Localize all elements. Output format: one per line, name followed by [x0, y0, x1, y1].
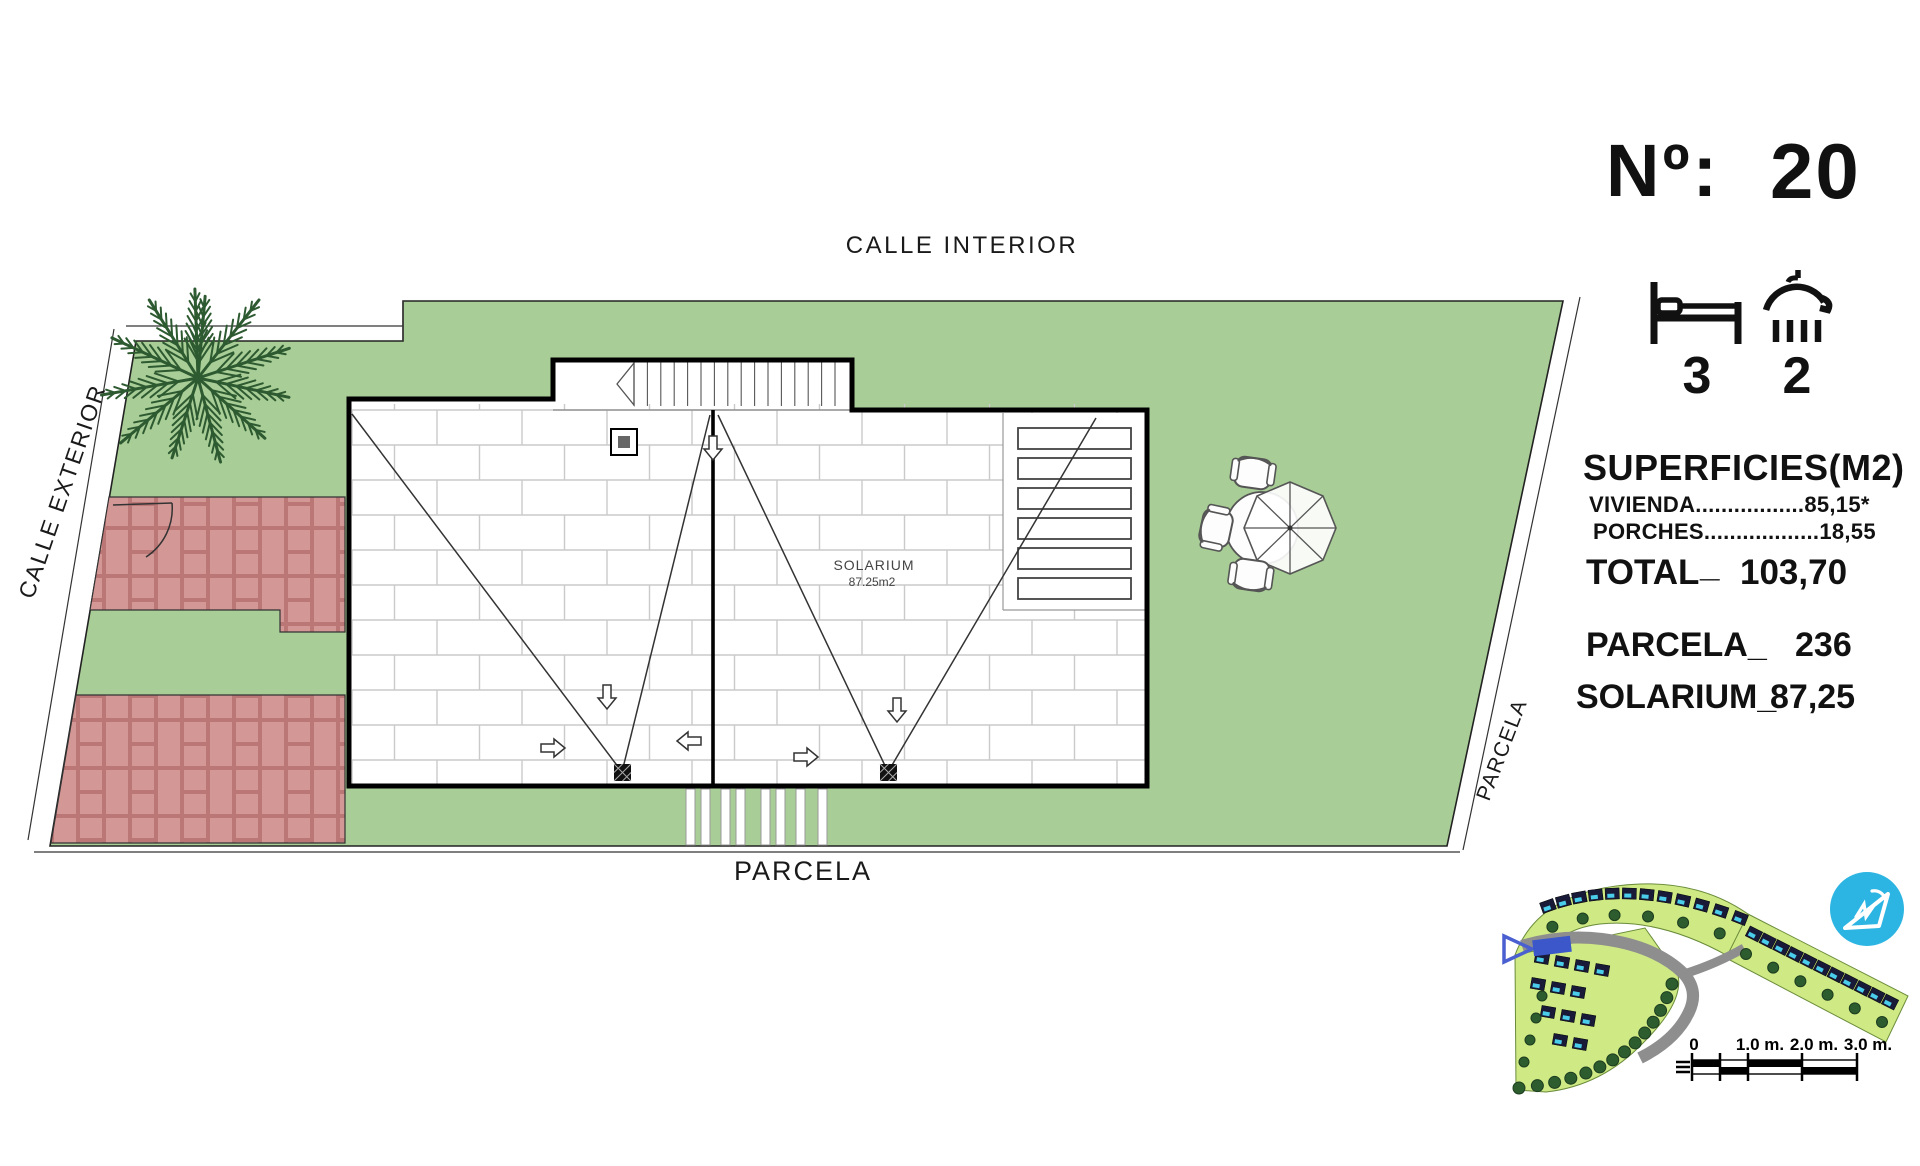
stepping-pad — [701, 789, 710, 845]
surfaces-title: SUPERFICIES(M2) — [1583, 447, 1905, 489]
bathrooms-count: 2 — [1752, 346, 1842, 406]
scale-tick-3: 3.0 m. — [1844, 1035, 1892, 1054]
minimap-house — [1580, 1013, 1596, 1026]
minimap-tree — [1714, 928, 1725, 939]
minimap-house — [1605, 888, 1619, 900]
stepping-pad — [818, 789, 827, 845]
minimap-house — [1540, 1005, 1556, 1018]
skylight — [611, 429, 637, 455]
minimap-tree — [1549, 1076, 1561, 1088]
solarium-room-label: SOLARIUM — [833, 557, 914, 573]
minimap-house — [1560, 1009, 1576, 1022]
brick-driveway-lower — [51, 695, 345, 843]
minimap-house — [1588, 889, 1603, 902]
minimap-tree — [1639, 1027, 1651, 1039]
minimap-house — [1572, 1037, 1588, 1050]
minimap-tree — [1519, 1057, 1529, 1067]
minimap-tree — [1547, 921, 1558, 932]
minimap-tree — [1525, 1035, 1535, 1045]
solarium-area-label: SOLARIUM_ — [1576, 678, 1776, 717]
minimap-tree — [1629, 1037, 1641, 1049]
total-area-value: 103,70 — [1740, 553, 1847, 593]
minimap-house — [1657, 890, 1673, 903]
minimap-tree — [1666, 978, 1678, 990]
street-label-calle-interior: CALLE INTERIOR — [846, 232, 1078, 259]
parcela-label-bottom: PARCELA — [734, 856, 872, 886]
porches-area-line: PORCHES..................18,55 — [1593, 519, 1876, 545]
minimap-tree — [1580, 1067, 1592, 1079]
scale-bar: 0 1.0 m. 2.0 m. 3.0 m. — [1676, 1035, 1892, 1081]
minimap-tree — [1594, 1061, 1606, 1073]
minimap-tree — [1795, 976, 1806, 987]
minimap-tree — [1849, 1003, 1860, 1014]
shower-icon — [1756, 268, 1840, 348]
minimap-tree — [1822, 989, 1833, 1000]
minimap-tree — [1661, 992, 1673, 1004]
scale-tick-0: 0 — [1689, 1035, 1698, 1054]
stepping-pad — [736, 789, 745, 845]
parcela-area-label: PARCELA_ — [1586, 626, 1767, 665]
minimap-tree — [1655, 1004, 1667, 1016]
bed-icon — [1648, 280, 1748, 346]
minimap-tree — [1768, 962, 1779, 973]
floor-plan-sheet: SOLARIUM 87.25m2 CALLE INTERIOR CALLE EX… — [0, 0, 1920, 1166]
scale-tick-2: 2.0 m. — [1790, 1035, 1838, 1054]
minimap-tree — [1643, 911, 1654, 922]
stepping-pad — [776, 789, 785, 845]
minimap-tree — [1531, 1013, 1541, 1023]
minimap-tree — [1877, 1017, 1888, 1028]
parcela-area-value: 236 — [1795, 626, 1852, 665]
plot-number-value: 20 — [1770, 126, 1861, 217]
minimap-tree — [1647, 1016, 1659, 1028]
bedrooms-count: 3 — [1652, 346, 1742, 406]
solarium-area-value: 87,25 — [1770, 678, 1855, 717]
minimap-house — [1574, 959, 1590, 972]
minimap-tree — [1537, 991, 1547, 1001]
palm-trunk — [194, 374, 203, 383]
minimap-tree — [1618, 1046, 1630, 1058]
minimap-house — [1530, 977, 1546, 990]
minimap-house — [1639, 889, 1654, 901]
scale-tick-1: 1.0 m. — [1736, 1035, 1784, 1054]
minimap-house — [1570, 985, 1586, 998]
solarium-area-label: 87.25m2 — [849, 575, 896, 589]
minimap-tree — [1531, 1080, 1543, 1092]
stepping-pad — [796, 789, 805, 845]
minimap-tree — [1513, 1082, 1525, 1094]
street-label-calle-exterior: CALLE EXTERIOR — [13, 381, 111, 602]
minimap-tree — [1609, 910, 1620, 921]
villa-roof-plan: SOLARIUM 87.25m2 — [349, 360, 1147, 786]
stepping-pad — [686, 789, 695, 845]
minimap-house — [1550, 981, 1566, 994]
minimap-tree — [1678, 917, 1689, 928]
builder-logo-icon — [1830, 872, 1904, 946]
stepping-pad — [761, 789, 770, 845]
minimap-house — [1554, 955, 1570, 968]
total-label: TOTAL — [1586, 553, 1699, 593]
minimap-tree — [1577, 913, 1588, 924]
pergola — [1003, 413, 1145, 610]
parcela-label-right: PARCELA — [1472, 696, 1532, 804]
minimap-house — [1571, 891, 1587, 904]
stepping-pad — [721, 789, 730, 845]
vivienda-area-line: VIVIENDA.................85,15* — [1589, 492, 1870, 518]
minimap-house — [1622, 888, 1636, 899]
total-separator: _ — [1700, 545, 1719, 585]
minimap-house — [1552, 1033, 1568, 1046]
minimap-tree — [1565, 1072, 1577, 1084]
minimap-tree — [1741, 949, 1752, 960]
minimap-house — [1594, 963, 1610, 976]
plot-number-label: Nº: — [1606, 128, 1720, 213]
minimap-tree — [1607, 1054, 1619, 1066]
